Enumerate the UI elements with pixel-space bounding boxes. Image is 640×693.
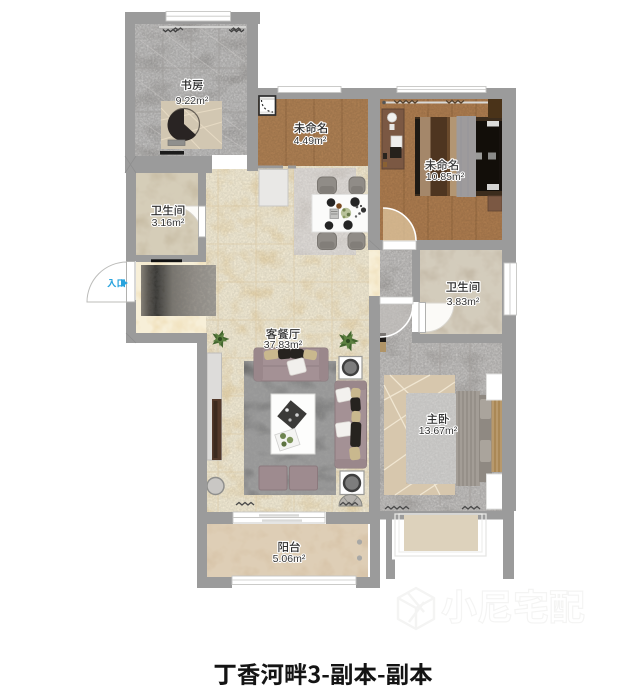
svg-text:5.06m²: 5.06m² bbox=[273, 553, 306, 565]
svg-text:4.49m²: 4.49m² bbox=[294, 135, 327, 147]
svg-text:3.16m²: 3.16m² bbox=[152, 217, 185, 229]
svg-text:9.22m²: 9.22m² bbox=[176, 95, 209, 107]
svg-text:37.83m²: 37.83m² bbox=[264, 339, 303, 351]
svg-text:3.83m²: 3.83m² bbox=[447, 296, 480, 308]
svg-text:13.67m²: 13.67m² bbox=[419, 425, 458, 437]
svg-text:10.85m²: 10.85m² bbox=[426, 171, 465, 183]
